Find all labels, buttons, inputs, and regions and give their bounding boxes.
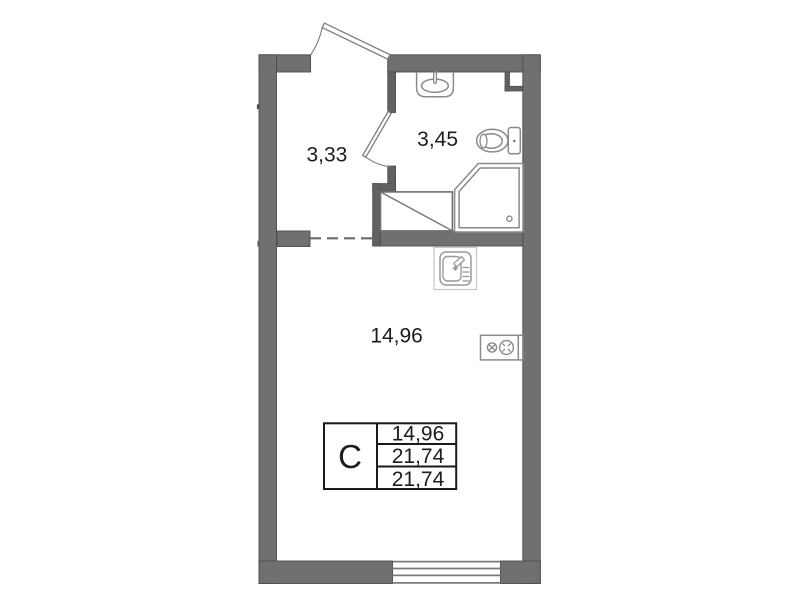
svg-text:3,33: 3,33 [306, 143, 347, 166]
svg-text:3,45: 3,45 [417, 128, 458, 151]
svg-text:21,74: 21,74 [392, 468, 445, 491]
svg-text:14,96: 14,96 [392, 423, 445, 446]
svg-text:14,96: 14,96 [370, 324, 423, 347]
svg-text:21,74: 21,74 [392, 445, 445, 468]
svg-text:C: C [338, 438, 362, 475]
